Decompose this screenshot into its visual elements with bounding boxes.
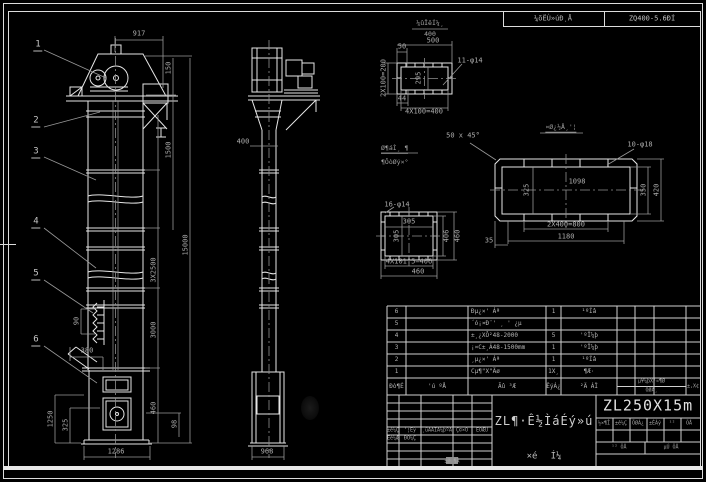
parts-row-cell: 2 [395, 357, 399, 363]
parts-row-cell: 5 [552, 333, 556, 339]
dim-label: 3X2500 [151, 257, 158, 282]
dim-label: 1180 [558, 234, 575, 241]
dim-label: 16-φ14 [384, 202, 409, 209]
dim-label: 2X400=800 [547, 222, 585, 229]
dim-label: 325 [63, 419, 70, 432]
dim-label: 1250 [48, 411, 55, 428]
elevator-front-view [66, 45, 178, 444]
reducer-label: ¼õËÙ»úÐͺÅ [534, 16, 572, 23]
drawing-canvas [0, 0, 706, 482]
title-block-label: ½×¶Î [598, 422, 610, 427]
dim-label: 150 [166, 62, 173, 75]
dim-label: 4X101.5=406 [386, 259, 432, 266]
dim-label: 4X100=400 [405, 109, 443, 116]
dim-label: 1500 [166, 142, 173, 159]
flange-details [381, 63, 637, 260]
item-balloon-4: 4 [31, 218, 40, 229]
dim-label: 325 [524, 184, 531, 197]
title-block-label: Ç©×Ö [456, 429, 468, 434]
scale-note-numerator: ¼ûÏêÍ¼¸ [416, 20, 443, 27]
parts-header-code: 'ú ºÅ [428, 384, 446, 390]
parts-row-cell: ¹ºÍâ [582, 357, 596, 363]
reducer-model: ZQ400-5.6ÐÍ [629, 16, 675, 23]
item-balloon-5: 5 [31, 270, 40, 281]
parts-row-cell: 3 [395, 345, 399, 351]
dim-label: 3000 [151, 322, 158, 339]
parts-header-no: Ðò¶É [389, 384, 403, 390]
dim-label: 917 [133, 31, 146, 38]
parts-row-name: ±¸¿XÔ²48-2000 [471, 333, 518, 339]
parts-header-remark: ±,X¢ [687, 385, 699, 390]
parts-row-cell: 6 [395, 309, 399, 315]
item-balloon-1: 1 [33, 41, 42, 52]
parts-row-cell: 1X¸ [548, 369, 559, 375]
title-block-label: ÕÅ [686, 422, 692, 427]
parts-row-cell: ¶Æ· [584, 369, 595, 375]
dim-label: 44 [398, 96, 406, 103]
parts-row-cell: 1 [395, 369, 399, 375]
dim-label: 50 x 45° [446, 133, 480, 140]
note-label: ¶ÔòØý×° [381, 159, 408, 166]
dim-label: 420 [654, 184, 661, 197]
dim-label: 400 [237, 139, 250, 146]
item-balloon-6: 6 [31, 336, 40, 347]
drawing-number: ZL250X15m [603, 399, 693, 414]
title-block-label: ¹² [669, 422, 675, 427]
dim-label: 305 [403, 219, 416, 226]
drawing-subtitle-right: Í¼ [551, 453, 562, 462]
title-block-label: '¦Êý [404, 429, 416, 434]
dim-label: 406 [444, 230, 451, 243]
dim-label: 305 [394, 230, 401, 243]
dim-label: 50 [398, 44, 406, 51]
dim-label: 90 [74, 317, 81, 325]
title-block-label: ¹² ÕÅ [611, 446, 626, 451]
dim-label: 968 [261, 449, 274, 456]
elevator-side-view [248, 48, 320, 446]
dim-label: 15000 [183, 234, 190, 255]
parts-row-cell: ¹ºÍâ [582, 309, 596, 315]
parts-header-material: ²Ä ÁÏ [580, 384, 598, 390]
parts-row-name: ¸µ¿×' Áª [471, 357, 500, 363]
dim-label: 460 [455, 230, 462, 243]
item-balloon-2: 2 [31, 117, 40, 128]
parts-row-cell: 'ºÏ¼þ [580, 333, 598, 339]
drawing-title: ZL¶·Ê½ÌáÉý»ú [495, 415, 594, 427]
item-balloon-3: 3 [31, 148, 40, 159]
sheet-bottom-edge [3, 466, 703, 470]
dim-label: 460 [412, 269, 425, 276]
screen-smudge [301, 396, 319, 420]
dim-label: 500 [427, 38, 440, 45]
dim-label: 460 [151, 402, 158, 415]
note-label: ¤Ø¿½Å¸'¦ [545, 124, 576, 133]
dim-label: 35 [485, 238, 493, 245]
dim-label: 380 [81, 348, 94, 355]
cad-drawing-sheet: ¼õËÙ»úÐͺÅ ZQ400-5.6ÐÍ ¼ûÏêÍ¼¸ 400 ZL250X… [0, 0, 706, 482]
drawing-subtitle-left: ×é [527, 453, 538, 462]
dim-label: 2X100=200 [381, 59, 388, 97]
parts-row-cell: 'ºÏ¼þ [580, 345, 598, 351]
title-block-label: µÚ ÕÅ [663, 446, 678, 451]
parts-row-cell: 4 [395, 333, 399, 339]
parts-row-name: Cµ¶"X"Äø [471, 369, 500, 375]
parts-row-cell: 1 [552, 345, 556, 351]
parts-row-cell: 1 [552, 309, 556, 315]
parts-row-name: ¡¤C±¸Á48-1500mm [471, 345, 525, 351]
parts-header-weight: ÖØÁ¸ [645, 388, 657, 393]
parts-row-name: ´ó¡¤Ð¨' ¸ ' ¿µ [471, 321, 522, 327]
dim-label: 1098 [569, 179, 586, 186]
title-block-label: ±ê¼Ç [615, 422, 627, 427]
parts-row-cell: 5 [395, 321, 399, 327]
title-block-label: Éè¼Æ [387, 437, 399, 442]
parts-header-name: Ãû ³Æ [498, 384, 516, 390]
title-block-label: ÖØÁ¿ [632, 422, 644, 427]
parts-header-weight: µ¥¼þX¹«¶Ø [638, 380, 665, 385]
dim-label: 11-φ14 [457, 58, 482, 65]
title-block-label: ÈÕÆÚ [476, 429, 488, 434]
title-block-label: ¸üÄÄÎÄ¼þºÅ [422, 429, 452, 434]
parts-header-qty: ÊýÁ¿ [546, 384, 560, 390]
dim-label: 10-φ18 [627, 142, 652, 149]
title-block-label: ±ê¼Ç [387, 429, 399, 434]
note-label: Ø¶áÌ¸ ¶ [381, 145, 408, 154]
dim-label: 1286 [108, 449, 125, 456]
dim-label: 98 [172, 420, 179, 428]
dim-label: 350 [641, 184, 648, 197]
title-block-label: ±Ø ¶Å [444, 460, 459, 465]
title-block-label: ±ÈÀý [649, 422, 661, 427]
title-block-label: ÐÕ¼Ç [404, 437, 416, 442]
parts-row-cell: 1 [552, 357, 556, 363]
parts-row-name: Ðµ¿×' Áª [471, 309, 500, 315]
dim-label: 295 [416, 72, 423, 85]
